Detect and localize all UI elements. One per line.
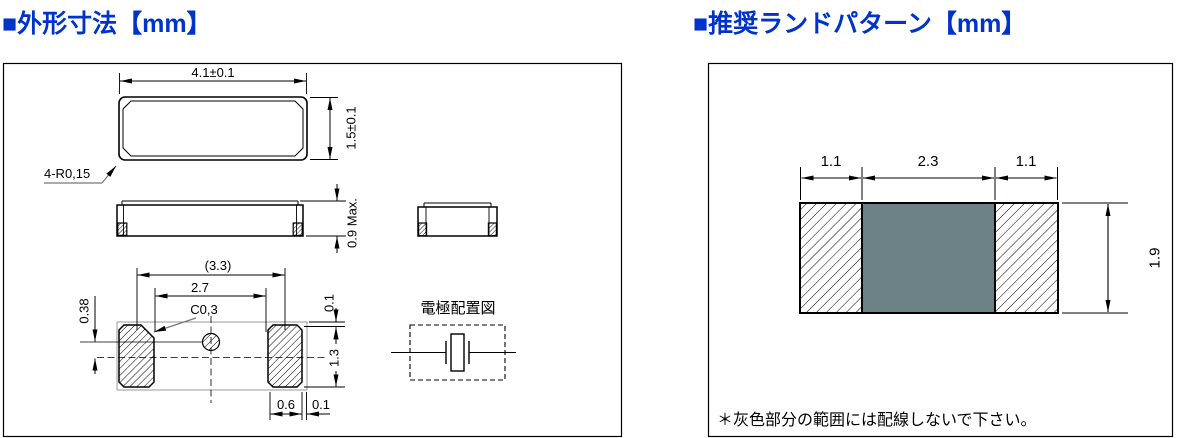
dim-right-pad-width: 1.1 xyxy=(1016,153,1037,170)
datasheet-page: ■外形寸法【mm】 ■推奨ランドパターン【mm】 xyxy=(0,0,1178,438)
dim-pattern-height: 1.9 xyxy=(1147,248,1164,269)
dim-chamfer: C0,3 xyxy=(190,302,217,317)
dim-corner-radius: 4-R0,15 xyxy=(44,166,90,181)
dim-edge-gap-top: 0.1 xyxy=(322,294,337,312)
land-pad-right xyxy=(995,203,1058,313)
technical-drawing: 4.1±0.1 1.5±0.1 4-R0,15 xyxy=(0,0,1178,438)
keepout-note: ＊灰色部分の範囲には配線しないで下さい。 xyxy=(717,411,1037,429)
outline-section-title: ■外形寸法【mm】 xyxy=(2,4,212,40)
keepout-area xyxy=(862,203,995,313)
end-view xyxy=(418,203,497,236)
dim-mark-offset: 0.38 xyxy=(77,298,92,323)
dim-inner-span: 2.7 xyxy=(191,280,209,295)
dim-edge-gap-side: 0.1 xyxy=(312,397,330,412)
land-pad-left xyxy=(800,203,862,313)
dim-pad-width: 0.6 xyxy=(277,397,295,412)
right-pad xyxy=(268,325,302,387)
dim-top-height: 1.5±0.1 xyxy=(344,106,359,149)
dim-overall-span: (3.3) xyxy=(205,258,232,273)
land-pattern-panel: 1.1 2.3 1.1 1.9 ＊灰色部分の範囲には配線しないで下さい。 xyxy=(709,64,1173,437)
dim-top-width: 4.1±0.1 xyxy=(191,65,234,80)
dim-pad-height: 1.3 xyxy=(327,349,342,367)
dim-left-pad-width: 1.1 xyxy=(821,153,842,170)
dim-center-width: 2.3 xyxy=(918,153,939,170)
land-pattern-section-title: ■推奨ランドパターン【mm】 xyxy=(693,4,1026,40)
electrode-diagram-label: 電極配置図 xyxy=(420,300,495,317)
left-pad xyxy=(119,325,154,387)
dim-front-height: 0.9 Max. xyxy=(345,198,360,248)
outline-panel: 4.1±0.1 1.5±0.1 4-R0,15 xyxy=(4,64,622,437)
